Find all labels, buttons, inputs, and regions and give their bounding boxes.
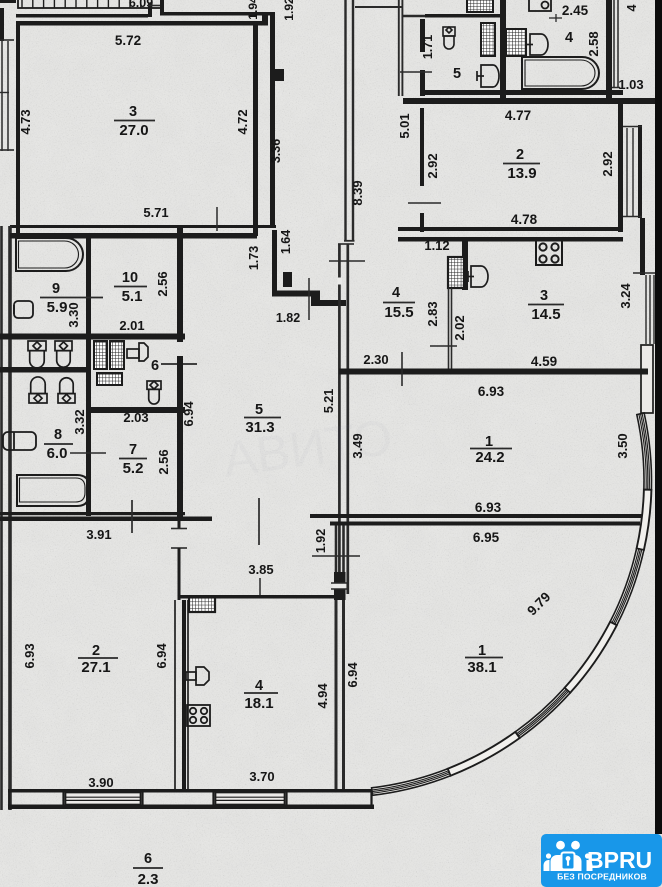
svg-text:8: 8 [54,427,62,443]
svg-text:1.03: 1.03 [618,77,643,92]
svg-text:4: 4 [625,4,639,11]
svg-text:6: 6 [144,851,152,867]
svg-text:6.94: 6.94 [181,401,196,427]
svg-text:38.1: 38.1 [467,659,496,676]
svg-text:3.85: 3.85 [248,562,273,577]
svg-text:5: 5 [255,402,263,418]
svg-text:13.9: 13.9 [507,165,536,182]
svg-text:5.01: 5.01 [397,113,412,138]
svg-text:5.9: 5.9 [47,299,68,316]
svg-text:2.03: 2.03 [123,410,148,425]
svg-text:24.2: 24.2 [475,449,504,466]
svg-text:3.91: 3.91 [86,527,111,542]
svg-text:2: 2 [92,643,100,659]
svg-text:4: 4 [392,285,400,301]
svg-text:1.92: 1.92 [314,529,328,553]
svg-text:10: 10 [122,270,138,286]
svg-text:1.73: 1.73 [247,246,261,270]
svg-text:3.50: 3.50 [615,433,630,458]
svg-text:2: 2 [516,147,524,163]
svg-text:4: 4 [565,30,573,46]
svg-text:3.24: 3.24 [618,283,633,309]
svg-text:5: 5 [453,66,461,82]
svg-text:1: 1 [478,643,486,659]
svg-text:2.83: 2.83 [425,301,440,326]
svg-text:15.5: 15.5 [384,304,413,321]
svg-text:7: 7 [129,442,137,458]
svg-text:2.92: 2.92 [600,151,615,176]
svg-text:2.3: 2.3 [138,871,159,887]
svg-text:6.93: 6.93 [478,384,505,399]
svg-text:27.0: 27.0 [119,122,148,139]
svg-text:6.93: 6.93 [475,500,502,515]
svg-text:1.64: 1.64 [279,230,293,254]
svg-text:2.01: 2.01 [119,318,144,333]
svg-text:6: 6 [151,358,159,374]
svg-text:6.94: 6.94 [345,662,360,688]
svg-text:2.56: 2.56 [156,449,171,474]
svg-text:5.2: 5.2 [123,460,144,477]
svg-text:4.77: 4.77 [505,108,531,123]
svg-text:2.45: 2.45 [562,3,589,18]
svg-text:8.39: 8.39 [350,180,365,205]
svg-text:2.58: 2.58 [586,31,601,56]
svg-text:1.94: 1.94 [246,0,260,20]
svg-text:3.30: 3.30 [66,302,81,327]
svg-text:3.70: 3.70 [249,769,274,784]
svg-text:БЕЗ ПОСРЕДНИКОВ: БЕЗ ПОСРЕДНИКОВ [557,872,647,882]
svg-text:9: 9 [52,281,60,297]
svg-text:1.82: 1.82 [276,311,300,325]
svg-text:3: 3 [540,288,548,304]
svg-text:2.02: 2.02 [452,315,467,340]
svg-text:2.92: 2.92 [425,153,440,178]
svg-text:6.95: 6.95 [473,530,500,545]
svg-text:BPRU: BPRU [587,847,652,873]
svg-text:3: 3 [129,104,137,120]
svg-text:5.71: 5.71 [143,205,168,220]
svg-text:5.21: 5.21 [322,389,336,413]
svg-text:4.78: 4.78 [511,212,538,227]
svg-text:4.94: 4.94 [315,683,330,709]
svg-text:4.59: 4.59 [531,354,557,369]
svg-text:4: 4 [255,678,263,694]
svg-text:6.0: 6.0 [47,445,68,462]
svg-text:3.90: 3.90 [88,775,113,790]
svg-text:1.71: 1.71 [421,35,435,59]
svg-text:1.92: 1.92 [282,0,296,21]
svg-text:1.12: 1.12 [424,238,449,253]
svg-text:1: 1 [485,434,493,450]
svg-text:5.72: 5.72 [115,33,141,48]
svg-text:4.72: 4.72 [235,109,250,134]
svg-text:3.36: 3.36 [269,139,283,163]
svg-text:2.30: 2.30 [363,352,388,367]
svg-text:6.93: 6.93 [22,643,37,668]
svg-text:4.73: 4.73 [18,109,33,134]
svg-text:6.94: 6.94 [154,643,169,669]
svg-text:5.1: 5.1 [122,288,143,305]
svg-text:27.1: 27.1 [81,659,110,676]
svg-text:2.56: 2.56 [155,271,170,296]
svg-text:3.32: 3.32 [72,409,87,434]
svg-text:14.5: 14.5 [531,306,560,323]
svg-text:18.1: 18.1 [244,695,273,712]
